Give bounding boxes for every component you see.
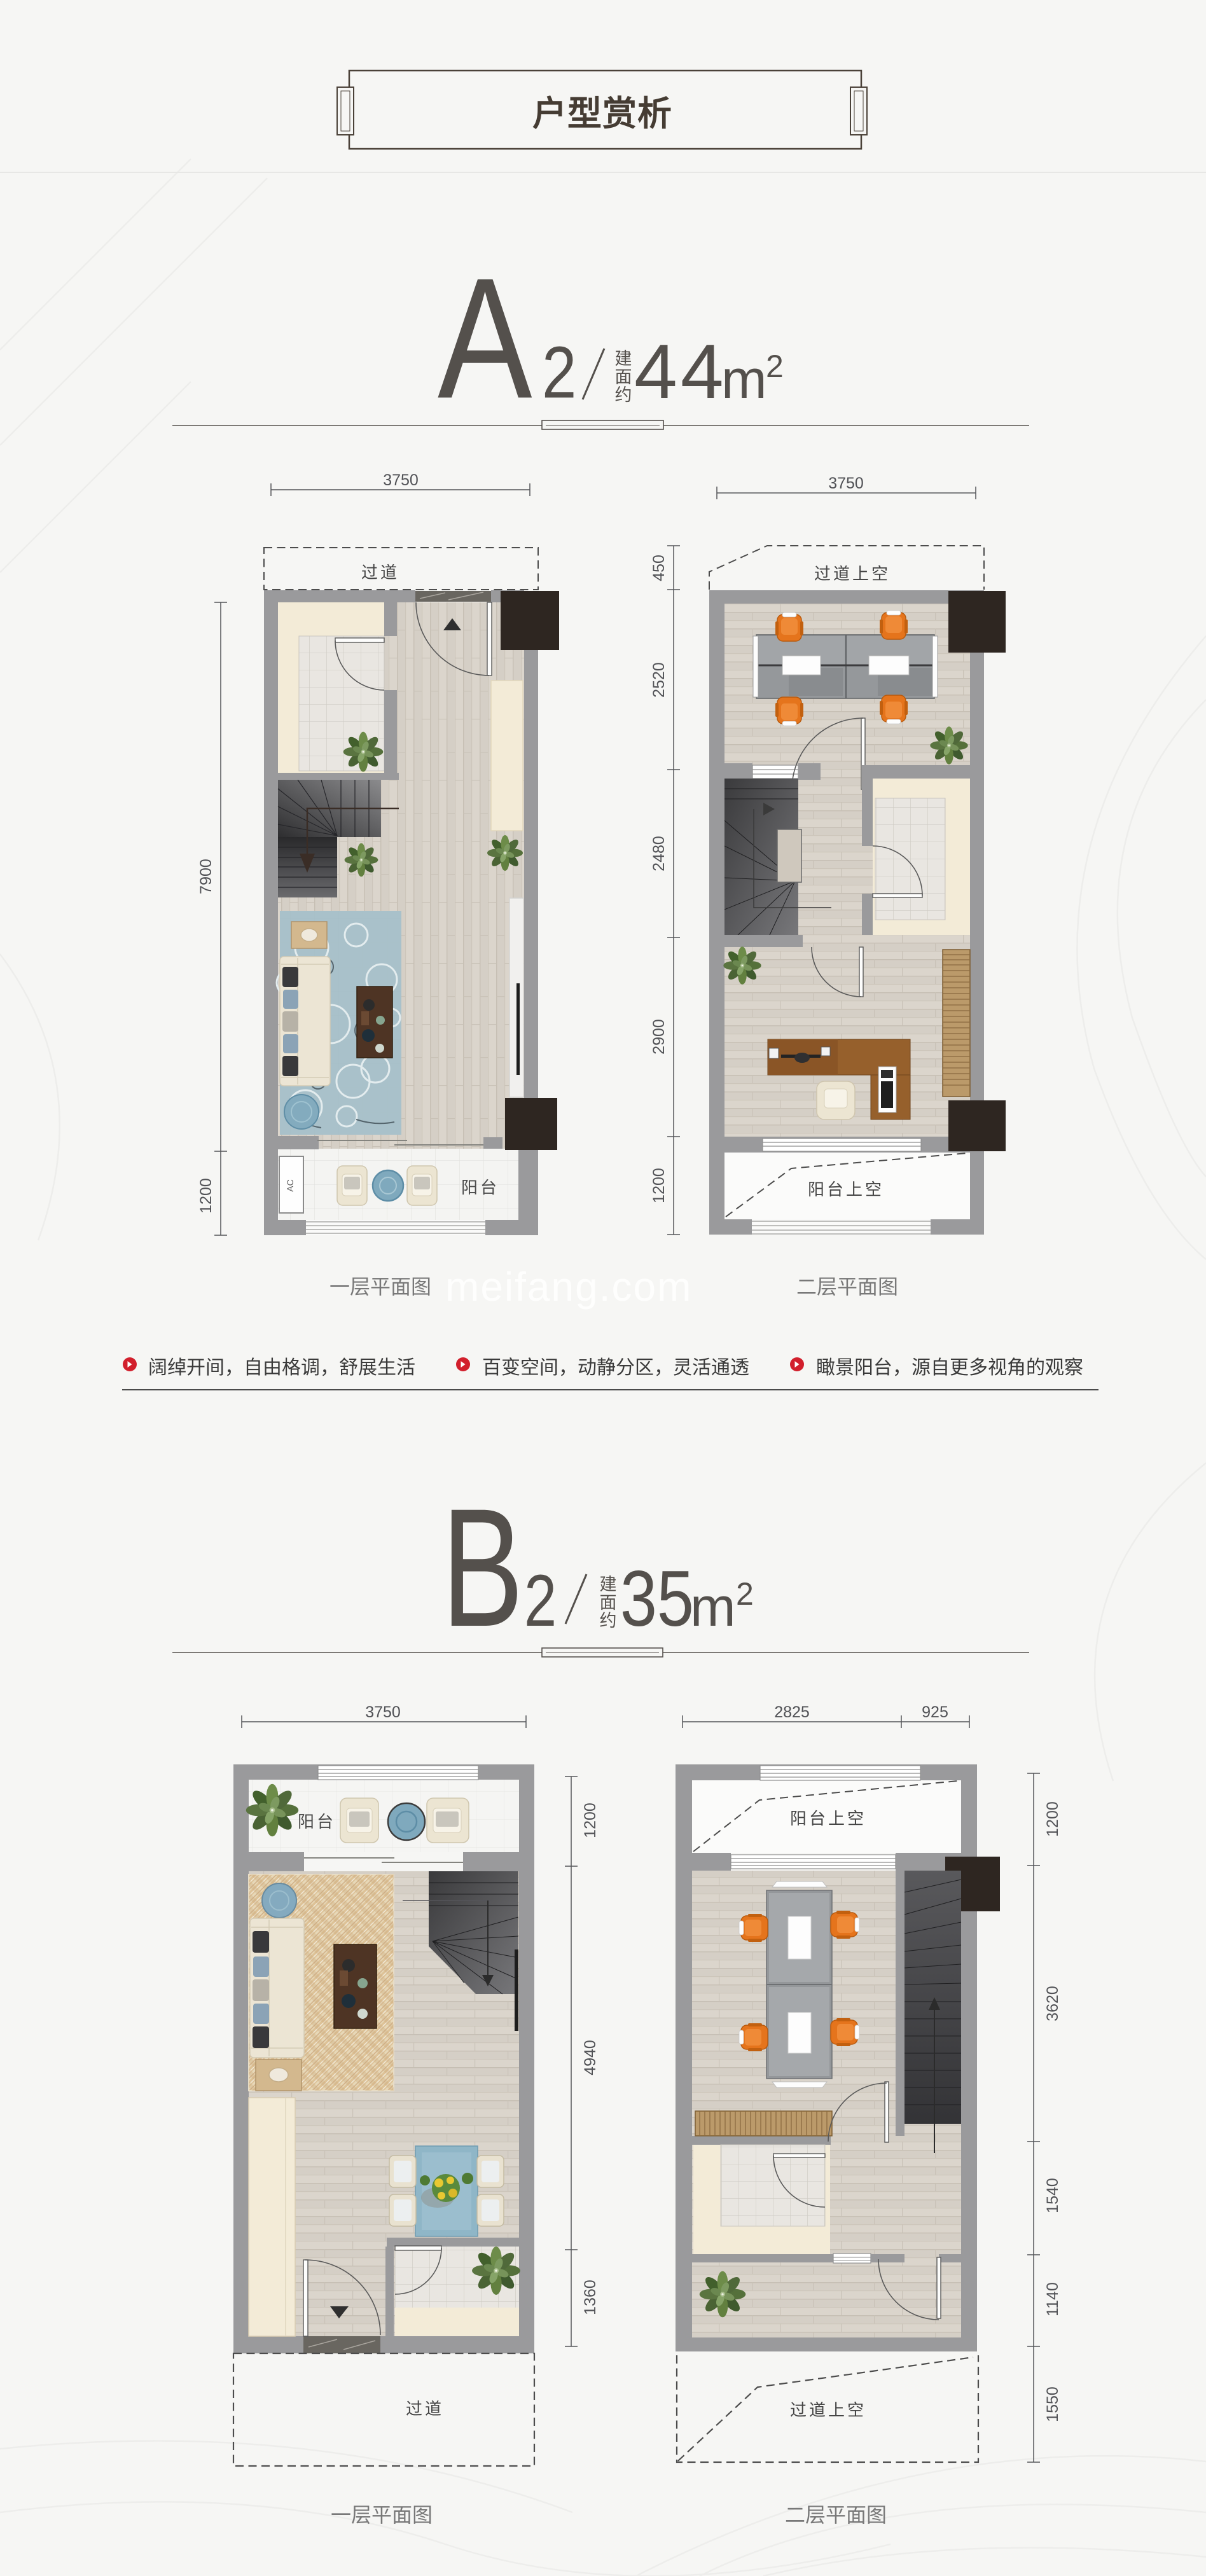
svg-text:35: 35: [620, 1555, 694, 1643]
svg-text:过道上空: 过道上空: [790, 2400, 866, 2420]
svg-text:约: 约: [600, 1611, 617, 1630]
svg-text:一层平面图: 一层平面图: [329, 1275, 431, 1298]
svg-text:户型赏析: 户型赏析: [532, 95, 672, 133]
svg-text:2480: 2480: [650, 836, 668, 871]
svg-text:meifang.com: meifang.com: [445, 1264, 692, 1310]
svg-text:瞰景阳台，源自更多视角的观察: 瞰景阳台，源自更多视角的观察: [816, 1357, 1083, 1378]
svg-text:建: 建: [615, 349, 632, 368]
svg-text:2: 2: [542, 331, 576, 413]
svg-text:2: 2: [766, 349, 784, 384]
svg-text:约: 约: [615, 385, 632, 405]
svg-text:1200: 1200: [581, 1803, 599, 1838]
svg-text:2: 2: [524, 1560, 557, 1642]
svg-text:过道上空: 过道上空: [814, 564, 891, 583]
svg-text:925: 925: [922, 1703, 948, 1721]
svg-text:2900: 2900: [650, 1019, 668, 1055]
svg-text:一层平面图: 一层平面图: [331, 2503, 433, 2526]
svg-text:450: 450: [650, 555, 668, 581]
svg-text:过道: 过道: [406, 2399, 444, 2418]
svg-text:2: 2: [736, 1576, 754, 1612]
svg-text:阳台: 阳台: [298, 1812, 336, 1831]
svg-text:2520: 2520: [650, 662, 668, 698]
svg-text:3750: 3750: [383, 471, 419, 489]
svg-text:1550: 1550: [1044, 2386, 1062, 2422]
svg-text:面: 面: [615, 368, 632, 387]
svg-text:百变空间，动静分区，灵活通透: 百变空间，动静分区，灵活通透: [482, 1357, 749, 1378]
svg-text:1200: 1200: [650, 1168, 668, 1203]
svg-text:面: 面: [600, 1593, 617, 1612]
svg-text:1360: 1360: [581, 2280, 599, 2315]
svg-text:阳台上空: 阳台上空: [790, 1809, 866, 1828]
svg-text:1540: 1540: [1044, 2178, 1062, 2213]
svg-text:阳台: 阳台: [461, 1178, 499, 1197]
svg-text:3750: 3750: [365, 1703, 401, 1721]
svg-text:二层平面图: 二层平面图: [796, 1275, 898, 1298]
svg-text:m: m: [721, 349, 767, 410]
svg-text:2825: 2825: [774, 1703, 810, 1721]
svg-text:A: A: [438, 243, 532, 434]
svg-text:建: 建: [600, 1575, 617, 1594]
svg-text:过道: 过道: [361, 563, 399, 582]
svg-text:阳台上空: 阳台上空: [808, 1180, 884, 1199]
svg-text:4940: 4940: [581, 2040, 599, 2075]
svg-text:1140: 1140: [1044, 2282, 1062, 2316]
svg-text:1200: 1200: [1044, 1801, 1062, 1837]
svg-text:7900: 7900: [197, 859, 215, 894]
svg-text:1200: 1200: [197, 1178, 215, 1214]
svg-text:阔绰开间，自由格调，舒展生活: 阔绰开间，自由格调，舒展生活: [148, 1357, 415, 1378]
svg-text:m: m: [690, 1577, 736, 1638]
svg-text:AC: AC: [285, 1179, 295, 1191]
svg-text:44: 44: [634, 328, 727, 415]
svg-text:B: B: [441, 1474, 523, 1662]
svg-text:3620: 3620: [1044, 1986, 1062, 2021]
svg-text:3750: 3750: [828, 474, 864, 492]
svg-text:二层平面图: 二层平面图: [785, 2503, 887, 2526]
